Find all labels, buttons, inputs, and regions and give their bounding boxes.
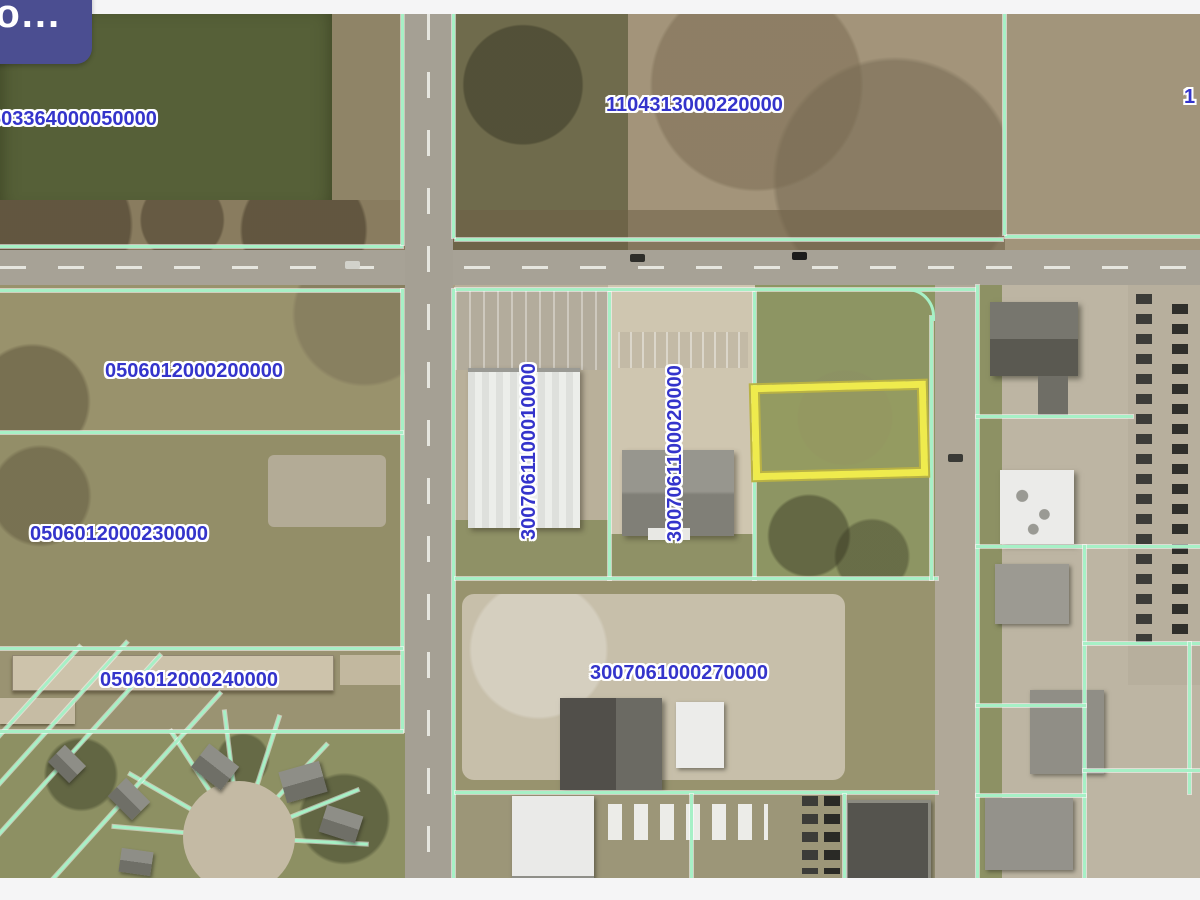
parcel-line	[976, 285, 979, 878]
parcel-line	[452, 14, 455, 238]
top-frame	[0, 0, 1200, 14]
frontage-road	[935, 285, 978, 878]
dark-roof-building	[990, 302, 1078, 376]
parcel-line	[1083, 545, 1086, 878]
parcel-line	[1083, 642, 1200, 645]
tree-line	[453, 210, 1005, 250]
white-building	[676, 702, 724, 768]
parcel-line	[976, 545, 1200, 548]
parcel-id-label: 0506012000230000	[30, 523, 208, 546]
building-wing	[1038, 376, 1068, 418]
white-roof-building	[1000, 470, 1074, 544]
selected-parcel-highlight[interactable]	[751, 381, 928, 481]
parcel-id-label: 1104313000220000	[606, 94, 783, 117]
parcel-line	[608, 292, 611, 580]
parcel-id-label: 603364000050000	[0, 108, 157, 131]
parcel-line	[0, 289, 403, 292]
road-centerline	[427, 14, 430, 878]
parcel-line	[401, 289, 404, 732]
parcel-id-label: 3007061100010000	[518, 328, 541, 540]
house	[118, 848, 153, 876]
parcel-line	[976, 415, 1133, 418]
parcel-line	[930, 316, 933, 580]
map-canvas[interactable]: 603364000050000 1104313000220000 1 05060…	[0, 14, 1200, 878]
car	[630, 254, 645, 262]
parked-car-row	[1136, 294, 1152, 654]
parcel-line	[0, 245, 403, 248]
gray-building	[995, 564, 1069, 624]
parcel-id-label: 0506012000200000	[105, 360, 283, 383]
tree-line	[0, 200, 405, 250]
car	[345, 261, 360, 269]
gray-building	[985, 798, 1073, 870]
parcel-line	[1005, 235, 1200, 238]
trailer-row	[608, 804, 768, 840]
map-overlay-button[interactable]: to...	[0, 0, 92, 64]
warehouse-building	[560, 698, 662, 790]
parcel-line	[0, 730, 403, 733]
east-west-road	[0, 250, 1200, 285]
dark-roof-building	[845, 800, 931, 878]
parcel-line	[976, 704, 1086, 707]
white-building	[512, 796, 594, 878]
north-south-road	[405, 14, 453, 878]
dirt-pad	[268, 455, 386, 527]
map-overlay-button-label: to...	[0, 0, 61, 37]
parcel-id-label: 0506012000240000	[100, 669, 278, 692]
gray-building	[1030, 690, 1104, 774]
parcel-line	[455, 238, 1003, 241]
parcel-line	[0, 431, 403, 434]
bottom-frame	[0, 878, 1200, 900]
parcel-line	[976, 794, 1086, 797]
parcel-id-label: 3007061000270000	[590, 662, 768, 685]
parcel-line	[455, 791, 938, 794]
northeast-field	[1005, 14, 1200, 250]
car	[948, 454, 963, 462]
gis-parcel-viewer: { "overlay": { "tooltip_label": "to..." …	[0, 0, 1200, 900]
parcel-id-label: 3007061100020000	[664, 324, 687, 542]
parked-car-row	[802, 796, 818, 874]
parcel-line	[1003, 14, 1006, 235]
parcel-line	[843, 794, 846, 878]
parked-car-row	[824, 796, 840, 874]
car	[792, 252, 807, 260]
parcel-line	[401, 14, 404, 245]
parcel-line	[1083, 769, 1200, 772]
parcel-line	[0, 647, 403, 650]
parked-car-row	[1172, 304, 1188, 644]
parcel-line	[690, 794, 693, 878]
warehouse-building	[340, 655, 402, 685]
road-centerline	[0, 266, 1200, 269]
parcel-line	[455, 288, 978, 291]
parcel-line	[452, 289, 455, 878]
grass-parcel	[0, 285, 405, 431]
parcel-line	[455, 577, 938, 580]
parcel-id-label: 1	[1184, 86, 1195, 109]
